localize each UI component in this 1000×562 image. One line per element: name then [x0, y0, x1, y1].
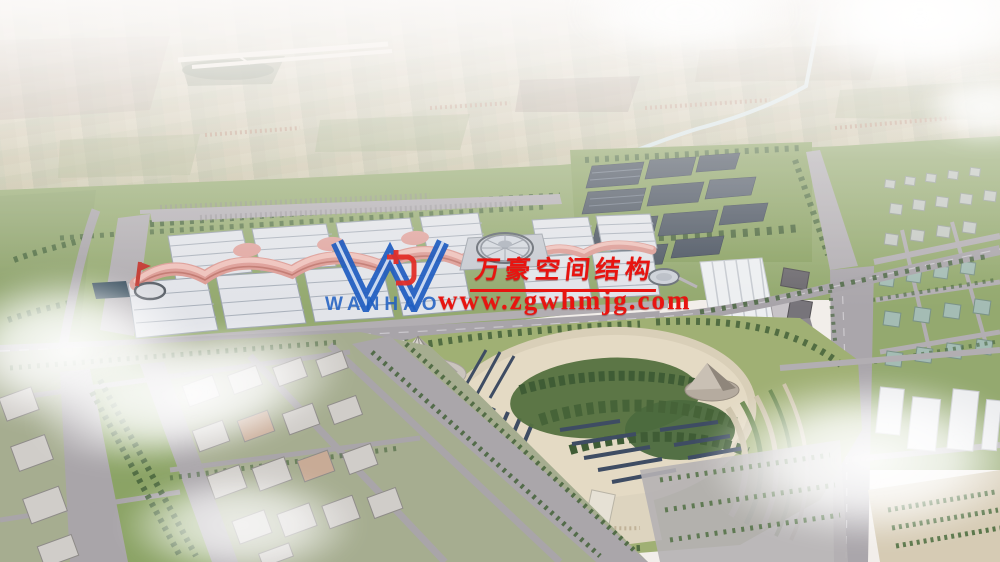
logo-wordmark: WANHAO — [325, 294, 442, 316]
aerial-render: WANHAO 万豪空间结构 www.zgwhmjg.com — [0, 0, 1000, 562]
website-url: www.zgwhmjg.com — [438, 285, 691, 316]
